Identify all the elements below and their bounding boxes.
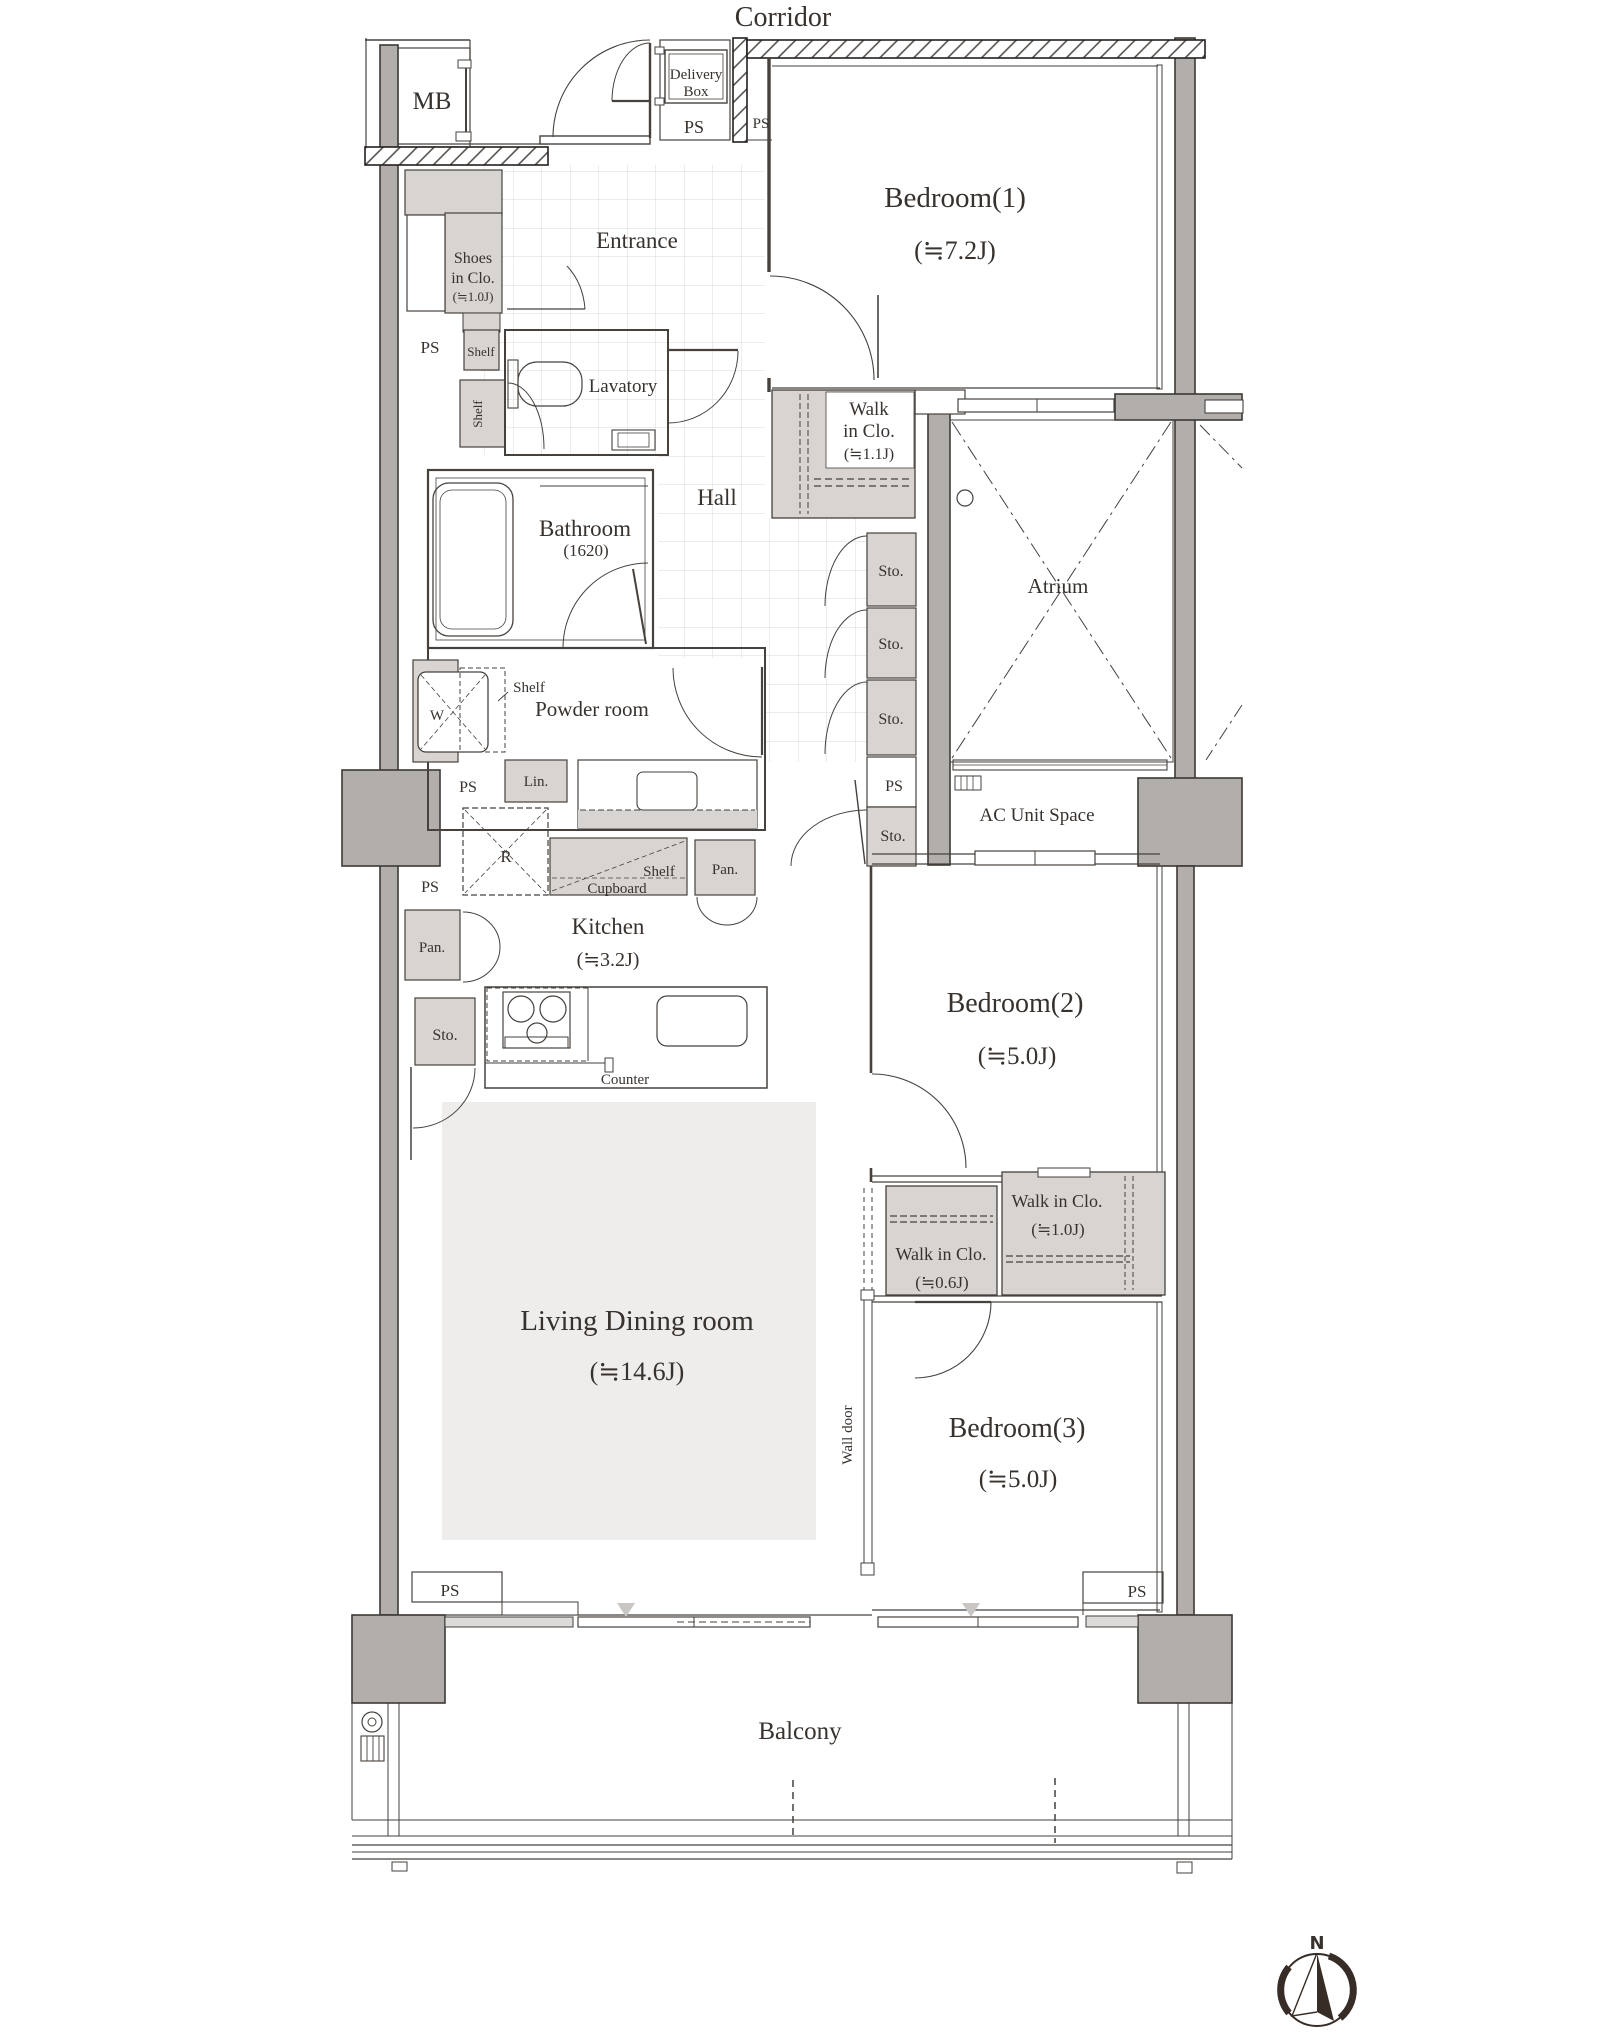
ps-label-powder: PS — [459, 779, 477, 796]
wic06-label: Walk in Clo. — [895, 1244, 986, 1264]
bathroom-label: Bathroom — [539, 516, 631, 541]
storage-label-4: Sto. — [880, 828, 905, 845]
bathroom-size-label: (1620) — [563, 541, 608, 560]
ps-label-entrance-left: PS — [421, 338, 440, 357]
living-dining-size-label: (≒14.6J) — [590, 1357, 685, 1386]
storage-label-1: Sto. — [878, 563, 903, 580]
wic11-label-3: (≒1.1J) — [844, 446, 894, 463]
bedroom1-structure — [769, 58, 1243, 414]
floor-plan-drawing: Corridor MB Delivery Box PS PS Entrance … — [0, 0, 1600, 2042]
faucet-icon — [361, 1712, 384, 1761]
ps-label-kitchen: PS — [421, 879, 439, 896]
atrium-label: Atrium — [1028, 574, 1089, 598]
bedroom1-size-label: (≒7.2J) — [914, 236, 996, 265]
wic10-size-label: (≒1.0J) — [1031, 1220, 1084, 1239]
shoes-closet-label-2: in Clo. — [451, 270, 495, 287]
bedroom3-size-label: (≒5.0J) — [979, 1466, 1058, 1493]
living-dining-label: Living Dining room — [520, 1305, 754, 1337]
wic11-label-2: in Clo. — [843, 421, 895, 442]
wic-structures — [864, 1168, 1165, 1295]
wall-door-label: Wall door — [840, 1405, 856, 1464]
ps-label-top: PS — [684, 117, 704, 137]
lavatory-label: Lavatory — [589, 376, 658, 397]
compass — [1281, 1953, 1354, 2026]
shoes-closet — [405, 170, 505, 447]
entrance-label: Entrance — [596, 228, 678, 253]
shoes-closet-label-3: (≒1.0J) — [453, 289, 494, 304]
wic10-label: Walk in Clo. — [1011, 1191, 1102, 1211]
wic11-label-1: Walk — [849, 399, 889, 420]
refrigerator-label: R — [500, 847, 512, 866]
ps-label-bottom-left: PS — [441, 1581, 460, 1600]
delivery-box-label-1: Delivery — [670, 67, 723, 83]
bedroom2-label: Bedroom(2) — [947, 988, 1084, 1019]
bathroom-structure — [428, 470, 653, 648]
shoes-closet-label-1: Shoes — [454, 250, 492, 267]
wic06-size-label: (≒0.6J) — [915, 1273, 968, 1292]
ps-label-bottom-right: PS — [1128, 1582, 1147, 1601]
kitchen-size-label: (≒3.2J) — [577, 949, 640, 971]
shelf-label-entrance: Shelf — [467, 344, 495, 359]
corridor-structure — [365, 38, 1205, 165]
shelf-label-powder: Shelf — [513, 680, 545, 696]
storage-label-2: Sto. — [878, 636, 903, 653]
powder-room-structure — [413, 648, 765, 830]
delivery-box-label-2: Box — [683, 84, 709, 100]
bedroom1-label: Bedroom(1) — [884, 182, 1026, 214]
shelf-label-cupboard: Shelf — [643, 864, 675, 880]
pantry-label-right: Pan. — [712, 862, 738, 878]
shelf-label-vertical: Shelf — [470, 400, 485, 428]
kitchen-label: Kitchen — [572, 914, 645, 939]
pantry-label-left: Pan. — [419, 940, 445, 956]
bedroom3-structure — [872, 1296, 1163, 1627]
ps-label-storage-column: PS — [885, 778, 903, 795]
powder-room-label: Powder room — [535, 697, 649, 721]
balcony-label: Balcony — [758, 1718, 842, 1745]
corridor-label: Corridor — [735, 2, 832, 33]
counter-label: Counter — [601, 1072, 649, 1088]
compass-north-label: N — [1309, 1933, 1324, 1954]
floor-plan-page: Corridor MB Delivery Box PS PS Entrance … — [0, 0, 1600, 2042]
mb-label: MB — [413, 88, 452, 115]
washer-label: W — [430, 708, 445, 724]
bedroom3-label: Bedroom(3) — [949, 1413, 1086, 1444]
bedroom2-size-label: (≒5.0J) — [978, 1043, 1057, 1070]
ps-label-bedroom1-corner: PS — [753, 116, 770, 132]
hall-label: Hall — [697, 485, 737, 510]
ac-unit-space-label: AC Unit Space — [979, 805, 1094, 826]
storage-label-3: Sto. — [878, 711, 903, 728]
cupboard-label: Cupboard — [587, 881, 647, 897]
atrium-structure — [950, 420, 1242, 790]
linen-label: Lin. — [524, 774, 549, 790]
storage-label-kitchen: Sto. — [432, 1027, 457, 1044]
